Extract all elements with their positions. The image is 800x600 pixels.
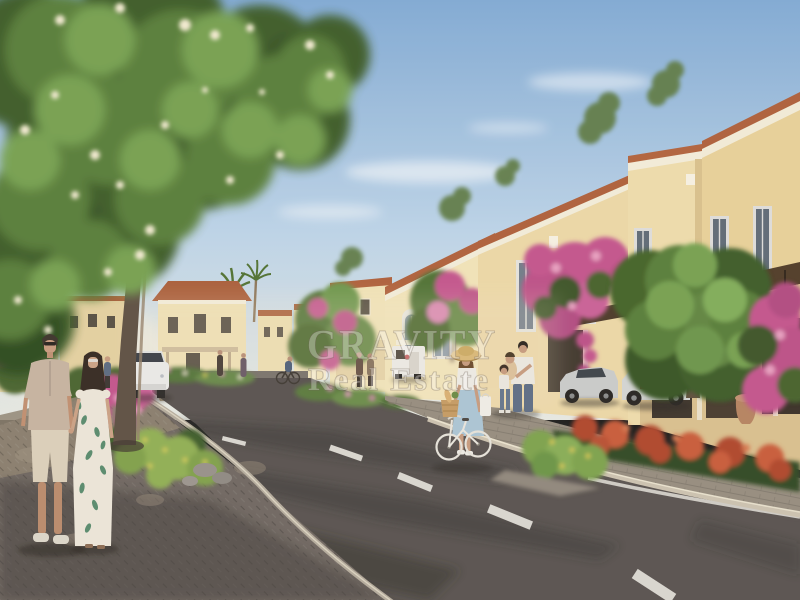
- street-scene-svg: GRAVITY Real Estate: [0, 0, 800, 600]
- warm-light-overlay: [0, 0, 800, 600]
- watermark-line2: Real Estate: [308, 361, 490, 397]
- street-scene-image: GRAVITY Real Estate: [0, 0, 800, 600]
- watermark: GRAVITY Real Estate: [307, 323, 497, 397]
